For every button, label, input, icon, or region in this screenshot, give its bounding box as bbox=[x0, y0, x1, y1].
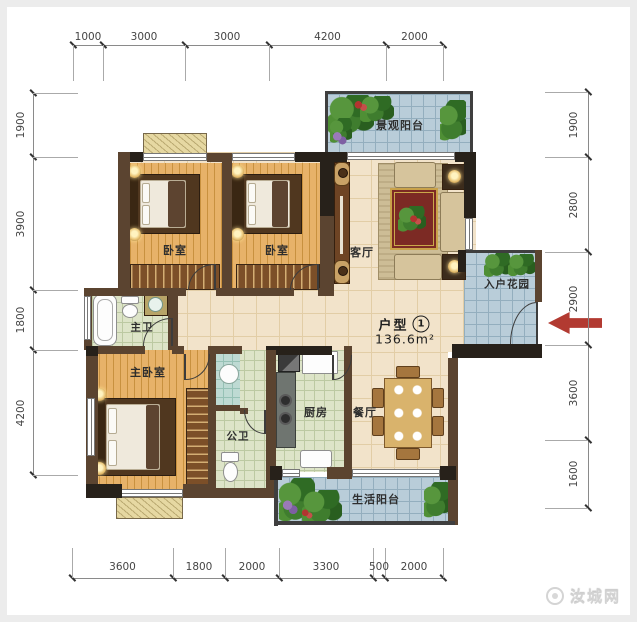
unit-area: 136.6m² bbox=[375, 332, 435, 347]
dimension-extension-line bbox=[269, 45, 270, 81]
balcony-wall bbox=[274, 480, 278, 526]
bed-duvet bbox=[272, 181, 288, 227]
dimension-label: 3900 bbox=[15, 210, 27, 237]
ceiling-lamp bbox=[231, 165, 244, 178]
room-label-view-balcony: 景观阳台 bbox=[376, 117, 424, 133]
dining-chair bbox=[432, 416, 444, 436]
dimension-label: 3300 bbox=[313, 561, 340, 573]
room-label-public-bath: 公卫 bbox=[227, 429, 250, 444]
shower-basin bbox=[219, 364, 239, 384]
service-balcony-plant bbox=[424, 482, 450, 520]
rug-flowers bbox=[408, 214, 422, 226]
bed-duvet bbox=[146, 405, 159, 469]
dimension-extension-line bbox=[103, 45, 104, 81]
room-label-master-bath: 主卫 bbox=[131, 320, 154, 335]
pillow bbox=[142, 205, 150, 225]
room-label-service-balcony: 生活阳台 bbox=[352, 491, 400, 507]
dimension-extension-line bbox=[545, 508, 588, 509]
dimension-line bbox=[33, 93, 34, 475]
wall-segment bbox=[183, 484, 216, 498]
dimension-extension-line bbox=[33, 350, 78, 351]
dimension-label: 3600 bbox=[109, 561, 136, 573]
wall-segment bbox=[216, 488, 276, 498]
dimension-label: 1000 bbox=[75, 31, 102, 43]
wall-segment bbox=[118, 152, 130, 296]
wall-segment bbox=[458, 250, 466, 272]
dimension-extension-line bbox=[279, 548, 280, 578]
dimension-label: 4200 bbox=[15, 399, 27, 426]
window bbox=[347, 152, 455, 160]
dimension-extension-line bbox=[33, 157, 78, 158]
wall-segment bbox=[86, 484, 122, 498]
sink bbox=[148, 297, 163, 312]
dimension-extension-line bbox=[443, 45, 444, 81]
dimension-extension-line bbox=[545, 252, 588, 253]
bay-window bbox=[116, 497, 183, 519]
service-balcony-flowers bbox=[300, 508, 313, 520]
wall-segment bbox=[440, 466, 456, 480]
window bbox=[84, 296, 91, 340]
bathtub-basin bbox=[97, 299, 113, 341]
pillow bbox=[248, 205, 256, 225]
window bbox=[282, 469, 300, 477]
watermark-text: 汝城网 bbox=[570, 586, 621, 607]
floor-plan: 景观阳台 卧室 卧室 客厅 入户花园 主卫 主卧室 公卫 厨房 餐厅 生活阳台 … bbox=[0, 0, 637, 622]
dimension-label: 1900 bbox=[15, 112, 27, 139]
dimension-extension-line bbox=[33, 290, 78, 291]
room-label-master-bedroom: 主卧室 bbox=[130, 364, 166, 380]
dining-chair bbox=[432, 388, 444, 408]
dimension-label: 4200 bbox=[314, 31, 341, 43]
dimension-label: 2000 bbox=[401, 31, 428, 43]
window bbox=[465, 218, 473, 250]
pillow bbox=[108, 408, 117, 434]
watermark-logo-icon bbox=[546, 587, 564, 605]
dimension-extension-line bbox=[386, 45, 387, 81]
pillow bbox=[108, 440, 117, 466]
window bbox=[119, 489, 183, 497]
wall-segment bbox=[318, 288, 334, 296]
dimension-label: 2900 bbox=[568, 285, 580, 312]
balcony-flowers bbox=[332, 130, 347, 146]
stove-burner bbox=[279, 394, 292, 407]
room-label-bedroom-left: 卧室 bbox=[163, 242, 187, 258]
window bbox=[352, 469, 440, 477]
toilet bbox=[221, 452, 239, 462]
tv-screen bbox=[340, 196, 343, 254]
balcony-wall bbox=[470, 91, 473, 155]
bed-duvet bbox=[168, 181, 185, 227]
dimension-label: 2000 bbox=[239, 561, 266, 573]
dimension-label: 2800 bbox=[568, 191, 580, 218]
wall-segment bbox=[222, 153, 232, 293]
dining-chair bbox=[396, 448, 420, 460]
wall-segment bbox=[172, 346, 184, 354]
wall-segment bbox=[320, 216, 334, 296]
balcony-wall bbox=[325, 91, 328, 155]
window bbox=[232, 153, 295, 161]
service-balcony-flowers bbox=[282, 498, 298, 516]
speaker bbox=[338, 168, 348, 178]
dimension-extension-line bbox=[73, 45, 74, 81]
pillow bbox=[142, 183, 150, 203]
wall-segment bbox=[208, 354, 216, 492]
wall-segment bbox=[464, 152, 476, 218]
dimension-extension-line bbox=[33, 475, 78, 476]
balcony-wall bbox=[277, 521, 455, 525]
wall-segment bbox=[216, 288, 294, 296]
wall-segment bbox=[535, 250, 542, 302]
door-leaf bbox=[317, 264, 319, 290]
dining-chair bbox=[396, 366, 420, 378]
wall-segment bbox=[270, 466, 282, 480]
wall-segment bbox=[327, 467, 352, 479]
dimension-label: 500 bbox=[369, 561, 389, 573]
dining-table bbox=[384, 378, 432, 448]
dimension-extension-line bbox=[443, 548, 444, 578]
unit-number-circle: 1 bbox=[413, 316, 430, 333]
dimension-extension-line bbox=[173, 548, 174, 578]
garden-wall bbox=[464, 250, 540, 253]
balcony-flowers bbox=[352, 100, 368, 112]
wall-segment bbox=[295, 152, 322, 162]
balcony-wall bbox=[325, 91, 473, 94]
wall-segment bbox=[320, 152, 334, 216]
window bbox=[143, 153, 207, 161]
door-leaf bbox=[214, 264, 216, 290]
dimension-label: 1600 bbox=[568, 461, 580, 488]
dimension-extension-line bbox=[72, 548, 73, 578]
sofa bbox=[394, 254, 442, 280]
room-label-kitchen: 厨房 bbox=[304, 404, 328, 420]
toilet bbox=[121, 296, 139, 304]
dimension-extension-line bbox=[185, 45, 186, 81]
wall-segment bbox=[86, 346, 98, 356]
dimension-label: 1900 bbox=[568, 111, 580, 138]
wall-segment bbox=[448, 358, 458, 525]
wardrobe bbox=[186, 388, 210, 496]
dimension-label: 2000 bbox=[401, 561, 428, 573]
toilet-bowl bbox=[223, 462, 238, 482]
dimension-extension-line bbox=[545, 157, 588, 158]
dimension-label: 1800 bbox=[15, 307, 27, 334]
speaker bbox=[338, 266, 348, 276]
ceiling-lamp bbox=[231, 228, 244, 241]
dimension-extension-line bbox=[33, 93, 78, 94]
door-leaf bbox=[171, 318, 173, 346]
wall-segment bbox=[452, 344, 542, 358]
bay-window bbox=[143, 133, 207, 154]
kitchen-sink-unit bbox=[300, 450, 332, 468]
dimension-label: 3600 bbox=[568, 379, 580, 406]
room-label-bedroom-mid: 卧室 bbox=[265, 242, 289, 258]
sofa bbox=[440, 192, 466, 252]
sofa bbox=[394, 162, 436, 188]
garden-plant bbox=[508, 254, 536, 276]
dimension-extension-line bbox=[545, 440, 588, 441]
dimension-extension-line bbox=[545, 345, 588, 346]
range-hood bbox=[278, 352, 300, 372]
shower-low-wall bbox=[214, 405, 240, 411]
window bbox=[87, 398, 95, 456]
room-label-living: 客厅 bbox=[350, 244, 374, 260]
pillow bbox=[248, 183, 256, 203]
dimension-label: 1800 bbox=[186, 561, 213, 573]
dimension-label: 3000 bbox=[214, 31, 241, 43]
dimension-label: 3000 bbox=[131, 31, 158, 43]
balcony-plant bbox=[440, 100, 466, 144]
wall-segment bbox=[208, 346, 242, 354]
dimension-extension-line bbox=[545, 92, 588, 93]
bed-headboard bbox=[232, 176, 244, 232]
table-lamp bbox=[448, 170, 461, 183]
dimension-extension-line bbox=[225, 548, 226, 578]
entrance-arrow-icon bbox=[548, 312, 602, 334]
room-label-entry-garden: 入户花园 bbox=[484, 277, 530, 292]
toilet-bowl bbox=[122, 304, 138, 318]
stove-burner bbox=[279, 412, 292, 425]
room-label-dining: 餐厅 bbox=[353, 404, 377, 420]
kitchen-counter bbox=[276, 372, 296, 448]
